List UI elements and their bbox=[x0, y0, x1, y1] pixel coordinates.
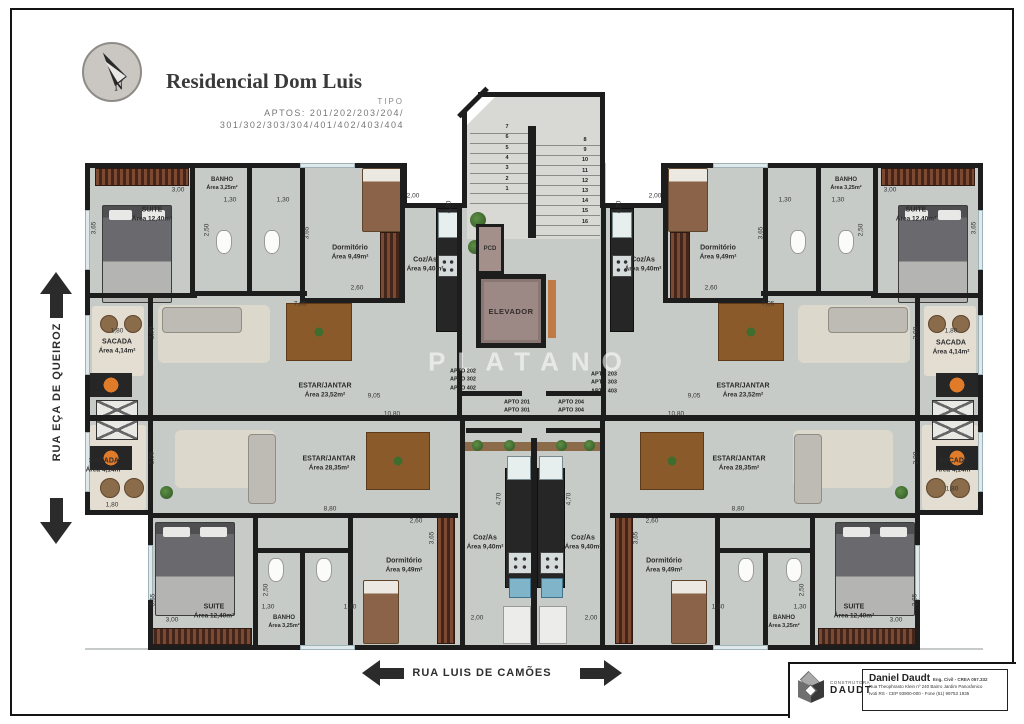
wall bbox=[528, 126, 536, 238]
plant bbox=[472, 440, 483, 451]
dimension-label: 1,80 bbox=[111, 328, 124, 335]
single-bed bbox=[363, 580, 399, 644]
dimension-label: 3,65 bbox=[150, 594, 157, 607]
floor-slab bbox=[503, 606, 531, 644]
wall bbox=[85, 415, 983, 421]
compass-north-label: N bbox=[112, 77, 125, 95]
dimension-label: 2,00 bbox=[913, 452, 920, 465]
dimension-label: 1,80 bbox=[946, 486, 959, 493]
wall bbox=[873, 166, 878, 298]
toilet bbox=[790, 230, 806, 254]
wall bbox=[531, 438, 537, 645]
window bbox=[978, 315, 983, 375]
stair-step-number: 10 bbox=[578, 157, 592, 163]
dimension-label: 3,65 bbox=[758, 227, 765, 240]
window bbox=[915, 545, 920, 600]
wall bbox=[253, 518, 258, 645]
engineer-info-box: Daniel Daudt Eng. Civil - CREA 057.332 R… bbox=[862, 669, 1008, 711]
plant bbox=[895, 486, 908, 499]
kitchen-sink bbox=[507, 456, 531, 480]
dimension-label: 2,50 bbox=[263, 584, 270, 597]
street-name-left: RUA EÇA DE QUEIROZ bbox=[51, 323, 63, 462]
toilet bbox=[838, 230, 854, 254]
wall bbox=[462, 112, 467, 208]
plant bbox=[160, 486, 173, 499]
wardrobe bbox=[437, 516, 455, 644]
stair-step-number: 14 bbox=[578, 198, 592, 204]
room-label: ESTAR/JANTARÁrea 28,35m² bbox=[302, 456, 355, 473]
toilet bbox=[738, 558, 754, 582]
stair-step-number: 16 bbox=[578, 219, 592, 225]
dimension-label: 10,80 bbox=[384, 411, 400, 418]
address-line2: Ivoti RS - CEP 93900-000 - Fone (51) 997… bbox=[869, 691, 1001, 698]
wall bbox=[300, 550, 305, 645]
dimension-label: 1,80 bbox=[106, 502, 119, 509]
dimension-label: 3,00 bbox=[172, 187, 185, 194]
dimension-label: 3,65 bbox=[429, 532, 436, 545]
apto-stack-label: APTO 204APTO 304APTO 404 bbox=[558, 399, 584, 424]
dimension-label: 2,60 bbox=[646, 518, 659, 525]
floor-slab bbox=[539, 606, 567, 644]
dimension-label: 9,05 bbox=[688, 393, 701, 400]
room-label: ESTAR/JANTARÁrea 23,52m² bbox=[298, 383, 351, 400]
armchair bbox=[926, 478, 946, 498]
single-bed bbox=[362, 168, 402, 232]
wardrobe bbox=[615, 516, 633, 644]
dining-table bbox=[286, 303, 352, 361]
stair-step-number: 9 bbox=[578, 147, 592, 153]
plant bbox=[584, 440, 595, 451]
room-label: ESTAR/JANTARÁrea 28,35m² bbox=[712, 456, 765, 473]
wall bbox=[715, 518, 720, 645]
dimension-label: 1,30 bbox=[277, 197, 290, 204]
pcd-label: PCD bbox=[484, 246, 497, 252]
plant bbox=[556, 440, 567, 451]
room-label: SUITEÁrea 12,40m² bbox=[896, 207, 936, 224]
dimension-label: 1,80 bbox=[945, 328, 958, 335]
armchair bbox=[124, 478, 144, 498]
engineer-credentials: Eng. Civil - CREA 057.332 bbox=[933, 677, 988, 682]
room-label: BANHOÁrea 3,25m² bbox=[206, 177, 237, 191]
stair-step-number: 6 bbox=[500, 134, 514, 140]
wardrobe bbox=[150, 628, 252, 645]
dimension-label: 8,80 bbox=[732, 506, 745, 513]
plant bbox=[504, 440, 515, 451]
dimension-label: 4,70 bbox=[566, 493, 573, 506]
stair-step-number: 1 bbox=[500, 186, 514, 192]
dimension-label: 2,50 bbox=[799, 584, 806, 597]
compass-icon: N bbox=[82, 42, 142, 102]
stair-step-number: 11 bbox=[578, 168, 592, 174]
kitchen-sink bbox=[539, 456, 563, 480]
wall bbox=[85, 163, 407, 168]
dimension-label: 3,65 bbox=[633, 532, 640, 545]
toilet bbox=[316, 558, 332, 582]
dimension-label: 1,30 bbox=[712, 604, 725, 611]
dimension-label: 1,30 bbox=[794, 604, 807, 611]
wall bbox=[466, 428, 522, 433]
wardrobe bbox=[670, 232, 690, 300]
sofa bbox=[248, 434, 276, 504]
wall bbox=[148, 418, 153, 515]
title-block-footer: CONSTRUTORA DAUDT Daniel Daudt Eng. Civi… bbox=[788, 662, 1016, 718]
exterior-area bbox=[85, 515, 148, 648]
plan-type-label: TIPO bbox=[166, 97, 404, 106]
wall bbox=[546, 428, 602, 433]
sofa bbox=[794, 434, 822, 504]
apartment-numbers-line2: 301/302/303/304/401/402/403/404 bbox=[166, 120, 404, 130]
dimension-label: 3,65 bbox=[304, 227, 311, 240]
stair-step-number: 7 bbox=[500, 124, 514, 130]
dishwasher bbox=[509, 578, 531, 598]
dimension-label: 1,30 bbox=[344, 604, 357, 611]
dimension-label: 3,65 bbox=[91, 222, 98, 235]
kitchen-sink bbox=[438, 212, 458, 238]
armchair bbox=[928, 315, 946, 333]
dimension-label: 2,90 bbox=[149, 327, 156, 340]
room-label: BANHOÁrea 3,25m² bbox=[768, 615, 799, 629]
room-label: SACADAÁrea 4,14m² bbox=[933, 340, 970, 357]
window bbox=[713, 163, 768, 168]
wall bbox=[478, 92, 605, 97]
dimension-label: 2,90 bbox=[913, 327, 920, 340]
duct-shaft bbox=[96, 420, 138, 440]
room-label: Coz/AsÁrea 9,40m² bbox=[467, 535, 504, 552]
room-label: SACADAÁrea 4,14m² bbox=[99, 339, 136, 356]
dimension-label: 3,00 bbox=[884, 187, 897, 194]
wall bbox=[810, 518, 815, 645]
wall bbox=[915, 418, 920, 515]
title-header: Residencial Dom Luis TIPO APTOS: 201/202… bbox=[166, 70, 404, 130]
room-label: BANHOÁrea 3,25m² bbox=[830, 177, 861, 191]
duct-shaft bbox=[932, 420, 974, 440]
dimension-label: 1,30 bbox=[262, 604, 275, 611]
window bbox=[85, 210, 90, 270]
dimension-label: 2,60 bbox=[351, 285, 364, 292]
dimension-label: 3,00 bbox=[166, 617, 179, 624]
street-name-bottom: RUA LUIS DE CAMÕES bbox=[412, 667, 551, 679]
room-label: SACADAÁrea 4,14m² bbox=[936, 458, 973, 475]
construtora-daudt-logo-icon bbox=[797, 672, 827, 708]
wall bbox=[915, 510, 983, 515]
elevator-door-panel bbox=[548, 280, 556, 338]
exterior-area bbox=[407, 163, 462, 206]
wall bbox=[400, 166, 405, 303]
stair-step-number: 4 bbox=[500, 155, 514, 161]
exterior-area bbox=[920, 515, 983, 648]
wall bbox=[303, 298, 405, 303]
dimension-label: 4,70 bbox=[446, 201, 453, 214]
dimension-label: 4,70 bbox=[496, 493, 503, 506]
wall bbox=[148, 298, 153, 418]
wall bbox=[915, 298, 920, 418]
wall bbox=[601, 203, 666, 208]
stair-step-number: 13 bbox=[578, 188, 592, 194]
dining-table bbox=[366, 432, 430, 490]
room-label: SUITEÁrea 12,40m² bbox=[834, 604, 874, 621]
street-arrow-up-icon bbox=[40, 272, 72, 318]
wall bbox=[718, 548, 813, 553]
barbecue-grill bbox=[90, 373, 132, 397]
dimension-label: 1,30 bbox=[832, 197, 845, 204]
dimension-label: 7,05 bbox=[762, 301, 775, 308]
room-label: Coz/AsÁrea 9,40m² bbox=[625, 257, 662, 274]
dimension-label: 9,05 bbox=[368, 393, 381, 400]
room-label: DormitórioÁrea 9,49m² bbox=[332, 245, 369, 262]
wall bbox=[190, 166, 195, 298]
dining-table bbox=[718, 303, 784, 361]
room-label: BANHOÁrea 3,25m² bbox=[268, 615, 299, 629]
single-bed bbox=[668, 168, 708, 232]
street-arrow-down-icon bbox=[40, 498, 72, 544]
apartment-numbers-line1: APTOS: 201/202/203/204/ bbox=[166, 108, 404, 118]
window bbox=[978, 210, 983, 270]
dimension-label: 2,60 bbox=[705, 285, 718, 292]
window bbox=[300, 645, 355, 650]
wall bbox=[255, 548, 350, 553]
elevator-room: ELEVADOR bbox=[476, 274, 546, 348]
dimension-label: 4,70 bbox=[616, 201, 623, 214]
wall bbox=[85, 293, 197, 298]
barbecue-grill bbox=[936, 373, 978, 397]
wardrobe bbox=[818, 628, 920, 645]
dimension-label: 2,50 bbox=[204, 224, 211, 237]
sofa bbox=[162, 307, 242, 333]
wall bbox=[247, 166, 252, 296]
room-label: SUITEÁrea 12,40m² bbox=[194, 604, 234, 621]
room-label: SACADAÁrea 4,14m² bbox=[86, 458, 123, 475]
wall bbox=[600, 92, 605, 208]
toilet bbox=[786, 558, 802, 582]
window bbox=[148, 545, 153, 600]
wall bbox=[348, 518, 353, 645]
wall bbox=[195, 291, 307, 296]
dimension-label: 3,00 bbox=[890, 617, 903, 624]
dimension-label: 1,30 bbox=[224, 197, 237, 204]
dimension-label: 1,30 bbox=[779, 197, 792, 204]
room-label: Coz/AsÁrea 9,40m² bbox=[565, 535, 602, 552]
stove bbox=[540, 552, 564, 574]
dimension-label: 2,00 bbox=[407, 193, 420, 200]
dimension-label: 2,00 bbox=[585, 615, 598, 622]
single-bed bbox=[671, 580, 707, 644]
street-arrow-right-icon bbox=[580, 660, 622, 686]
wall bbox=[871, 293, 983, 298]
dimension-label: 2,50 bbox=[858, 224, 865, 237]
dishwasher bbox=[541, 578, 563, 598]
address-line1: Rua Theophrasto Klein nº 240 Bairro Jard… bbox=[869, 684, 1001, 691]
exterior-area bbox=[606, 163, 661, 206]
pcd-room: PCD bbox=[476, 224, 504, 274]
wall bbox=[761, 291, 873, 296]
room-label: Coz/AsÁrea 9,40m² bbox=[407, 257, 444, 274]
apto-stack-label: APTO 203APTO 303APTO 403 bbox=[591, 371, 617, 396]
project-title: Residencial Dom Luis bbox=[166, 70, 404, 93]
engineer-name: Daniel Daudt bbox=[869, 673, 930, 684]
armchair bbox=[100, 478, 120, 498]
toilet bbox=[216, 230, 232, 254]
dimension-label: 3,65 bbox=[971, 222, 978, 235]
wall bbox=[460, 420, 465, 650]
stair-step-number: 2 bbox=[500, 176, 514, 182]
stair-flight-left bbox=[470, 124, 528, 204]
dimension-label: 8,80 bbox=[324, 506, 337, 513]
dining-table bbox=[640, 432, 704, 490]
stair-step-number: 8 bbox=[578, 137, 592, 143]
room-label: SUITEÁrea 12,40m² bbox=[132, 207, 172, 224]
toilet bbox=[264, 230, 280, 254]
stair-step-number: 12 bbox=[578, 178, 592, 184]
room-label: DormitórioÁrea 9,49m² bbox=[646, 558, 683, 575]
stove bbox=[508, 552, 532, 574]
window bbox=[300, 163, 355, 168]
wardrobe bbox=[95, 168, 189, 186]
stair-step-number: 3 bbox=[500, 165, 514, 171]
wall bbox=[763, 550, 768, 645]
plan-sheet: N Residencial Dom Luis TIPO APTOS: 201/2… bbox=[0, 0, 1024, 724]
dimension-label: 2,00 bbox=[149, 452, 156, 465]
street-arrow-left-icon bbox=[362, 660, 404, 686]
window bbox=[85, 315, 90, 375]
dimension-label: 10,80 bbox=[668, 411, 684, 418]
armchair bbox=[124, 315, 142, 333]
double-bed bbox=[835, 522, 915, 616]
wall bbox=[663, 166, 668, 303]
wall bbox=[85, 510, 153, 515]
wall bbox=[661, 163, 983, 168]
elevator-label: ELEVADOR bbox=[488, 307, 533, 316]
wall bbox=[816, 166, 821, 296]
apto-stack-label: APTO 201APTO 301APTO 401 bbox=[504, 399, 530, 424]
floor-plan: PCD ELEVADOR PLATANO SUITEÁrea 12,40m²BA… bbox=[0, 0, 1024, 724]
kitchen-sink bbox=[612, 212, 632, 238]
room-label: ESTAR/JANTARÁrea 23,52m² bbox=[716, 383, 769, 400]
dimension-label: 2,00 bbox=[649, 193, 662, 200]
stair-step-number: 15 bbox=[578, 208, 592, 214]
wall bbox=[663, 298, 765, 303]
wardrobe bbox=[380, 232, 400, 300]
sofa bbox=[828, 307, 908, 333]
dimension-label: 7,05 bbox=[294, 301, 307, 308]
dimension-label: 3,65 bbox=[912, 594, 919, 607]
double-bed bbox=[155, 522, 235, 616]
window bbox=[713, 645, 768, 650]
wardrobe bbox=[881, 168, 975, 186]
dimension-label: 2,00 bbox=[471, 615, 484, 622]
wall bbox=[148, 645, 920, 650]
room-label: DormitórioÁrea 9,49m² bbox=[700, 245, 737, 262]
room-label: DormitórioÁrea 9,49m² bbox=[386, 558, 423, 575]
apto-stack-label: APTO 202APTO 302APTO 402 bbox=[450, 368, 476, 393]
dimension-label: 2,60 bbox=[410, 518, 423, 525]
stair-step-number: 5 bbox=[500, 145, 514, 151]
window bbox=[978, 432, 983, 492]
toilet bbox=[268, 558, 284, 582]
